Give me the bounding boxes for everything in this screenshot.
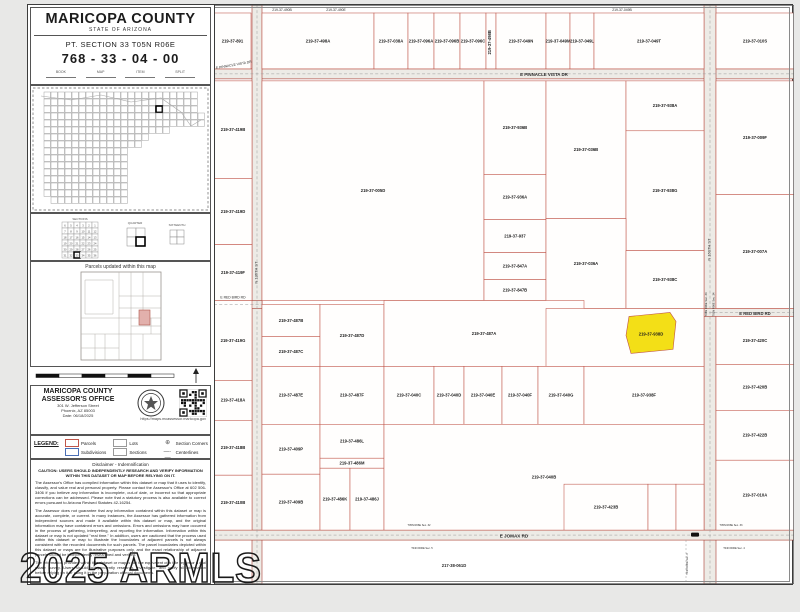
parcel-id-label: 219-37-936B xyxy=(503,125,527,130)
index-map-cell xyxy=(128,134,134,140)
qr-module xyxy=(195,397,197,399)
page: { "watermark": "2025 ARMLS", "sidebar": … xyxy=(0,0,800,612)
index-map-cell xyxy=(177,99,183,105)
index-map-cell xyxy=(121,197,127,203)
qr-finder-dot xyxy=(182,412,185,415)
qr-module xyxy=(192,399,194,401)
map-text-label: N 136TH ST xyxy=(253,261,258,284)
index-map-cell xyxy=(44,92,50,98)
map-text-label: T05N R06E Sec. 34 xyxy=(711,292,715,316)
qr-module xyxy=(195,394,197,396)
index-map-cell xyxy=(170,120,176,126)
index-map-cell xyxy=(86,120,92,126)
index-map-cell xyxy=(65,120,71,126)
parcel-id-label: 219-37-487F xyxy=(340,393,364,398)
index-map-cell xyxy=(86,169,92,175)
index-map-cell xyxy=(65,169,71,175)
index-map-cell xyxy=(156,113,162,119)
index-map-cell xyxy=(156,92,162,98)
index-map-cell xyxy=(142,106,148,112)
map-date: Date: 06/18/2025 xyxy=(63,413,94,418)
legend-item-label: Section Corners xyxy=(176,441,208,446)
sixteenth-grid-cell xyxy=(170,237,177,244)
index-map-cell xyxy=(79,155,85,161)
index-map-cell xyxy=(65,92,71,98)
index-map-cell xyxy=(79,120,85,126)
index-map-cell xyxy=(100,162,106,168)
index-map-cell xyxy=(72,141,78,147)
index-map-cell xyxy=(121,176,127,182)
index-map-cell xyxy=(191,99,197,105)
index-map-cell xyxy=(163,127,169,133)
parcel-id-label: 219-37-487E xyxy=(279,393,303,398)
index-map-cell xyxy=(107,162,113,168)
parcel-id-label: 219-37-040F xyxy=(508,393,532,398)
legend-item-centerline: —·—Centerlines xyxy=(162,448,208,456)
parcel-id-label: 219-37-096B xyxy=(435,38,459,43)
index-map-cell xyxy=(72,176,78,182)
index-map-cell xyxy=(156,127,162,133)
map-text-label: 217-38-061D xyxy=(442,563,466,568)
qr-module xyxy=(195,405,197,407)
parcel-id-label: 219-37-049L xyxy=(570,38,594,43)
index-map-cell xyxy=(107,106,113,112)
index-map-cell xyxy=(44,148,50,154)
index-map-cell xyxy=(44,120,50,126)
armls-watermark: 2025 ARMLS xyxy=(20,544,262,592)
index-map-cell xyxy=(107,127,113,133)
index-map-cell xyxy=(170,106,176,112)
index-map-cell xyxy=(135,134,141,140)
quarter-grid-cell xyxy=(127,237,136,246)
diagram-title: SIXTEENTH xyxy=(169,223,186,227)
qr-module xyxy=(195,391,197,393)
scale-bar xyxy=(30,367,209,385)
index-map-cell xyxy=(100,148,106,154)
parcel-id-label: 219-37-498B xyxy=(487,30,492,54)
sixteenth-grid-cell xyxy=(170,230,177,237)
map-text-label: T05N R06E Sec. 32 xyxy=(408,523,432,527)
index-map-cell xyxy=(149,127,155,133)
parcel[interactable] xyxy=(648,484,676,530)
qr-module xyxy=(200,399,202,401)
index-map-cell xyxy=(79,141,85,147)
diagram-title: SECTIONS xyxy=(72,217,87,221)
index-map-cell xyxy=(184,106,190,112)
index-map-cell xyxy=(44,134,50,140)
index-map-cell xyxy=(65,162,71,168)
index-map-cell xyxy=(93,197,99,203)
index-map-cell xyxy=(65,155,71,161)
index-map-cell xyxy=(44,127,50,133)
index-map-cell xyxy=(121,106,127,112)
index-map-cell xyxy=(114,190,120,196)
qr-module xyxy=(192,402,194,404)
parcel-id-label: 219-37-486L xyxy=(340,439,364,444)
county-title: MARICOPA COUNTY xyxy=(31,11,210,27)
qr-module xyxy=(181,402,183,404)
parcel-id-label: 219-37-419D xyxy=(221,209,245,214)
parcel-id-label: 219-37-010A xyxy=(743,493,767,498)
parcel-id-label: 219-37-938F xyxy=(632,393,656,398)
index-map-cell xyxy=(58,169,64,175)
legend-item-label: Subdivisions xyxy=(81,450,106,455)
index-map-cell xyxy=(191,106,197,112)
index-map-cell xyxy=(114,197,120,203)
qr-module xyxy=(184,399,186,401)
updated-parcels-minimap xyxy=(73,270,169,364)
index-map-cell xyxy=(163,106,169,112)
index-map-cell xyxy=(79,134,85,140)
qr-module xyxy=(195,410,197,412)
index-map-cell xyxy=(177,92,183,98)
index-map-cell xyxy=(44,113,50,119)
index-map-cell xyxy=(51,162,57,168)
index-map-cell xyxy=(149,113,155,119)
index-map-cell xyxy=(79,176,85,182)
index-map-cell xyxy=(72,169,78,175)
office-name: MARICOPA COUNTY ASSESSOR'S OFFICE xyxy=(34,388,122,403)
county-index-map-svg xyxy=(31,86,210,212)
parcel-id-label: 219-37-049T xyxy=(637,38,661,43)
disclaimer-paragraph: The Assessor's Office has compiled infor… xyxy=(35,481,206,506)
index-map-cell xyxy=(79,99,85,105)
parcel-id-label: 219-37-847A xyxy=(503,263,527,268)
index-map-cell xyxy=(65,134,71,140)
parcel-id-label: 219-37-040C xyxy=(397,393,421,398)
index-map-cell xyxy=(44,106,50,112)
parcel-id-label: 219-37-847B xyxy=(503,287,527,292)
index-map-cell xyxy=(142,92,148,98)
parcel-id-label: 219-37-937 xyxy=(504,234,526,239)
index-map-cell xyxy=(149,92,155,98)
index-map-cell xyxy=(121,162,127,168)
office-address: 301 W. Jefferson Street Phoenix, AZ 8500… xyxy=(34,404,122,418)
index-map-cell xyxy=(79,113,85,119)
index-map-cell xyxy=(135,106,141,112)
index-map-cell xyxy=(107,134,113,140)
index-map-cell xyxy=(93,127,99,133)
index-map-cell xyxy=(184,92,190,98)
index-map-cell xyxy=(135,141,141,147)
index-map-cell xyxy=(100,113,106,119)
highlighted-parcel-label: 219-37-938D xyxy=(639,332,663,337)
legend-item-parcel: Parcels xyxy=(65,439,111,447)
index-map-cell xyxy=(114,169,120,175)
index-map-cell xyxy=(58,183,64,189)
quarter-grid-cell xyxy=(127,228,136,237)
assessor-office-block: MARICOPA COUNTY ASSESSOR'S OFFICE 301 W.… xyxy=(30,385,211,435)
index-map-cell xyxy=(51,197,57,203)
index-map-cell xyxy=(121,120,127,126)
qr-module xyxy=(195,408,197,410)
index-map-cell xyxy=(107,176,113,182)
index-map-cell xyxy=(79,148,85,154)
parcel-id-label: 219-37-410B xyxy=(221,500,245,505)
index-map-cell xyxy=(72,106,78,112)
parcel-book-number: 768 - 33 - 04 - 00 xyxy=(31,51,210,66)
state-subtitle: STATE OF ARIZONA xyxy=(34,27,207,36)
parcel-id-label: 219-37-423B xyxy=(594,505,618,510)
index-map-cell xyxy=(58,99,64,105)
scale-bar-segment xyxy=(36,374,59,378)
index-map-cell xyxy=(107,99,113,105)
parcel-id-label: 219-37-486M xyxy=(340,461,365,466)
index-map-cell xyxy=(51,183,57,189)
index-map-cell xyxy=(121,148,127,154)
qr-module xyxy=(197,408,199,410)
index-map-cell xyxy=(107,183,113,189)
index-map-cell xyxy=(93,155,99,161)
header-col: BOOK xyxy=(46,70,76,78)
index-map-cell xyxy=(128,141,134,147)
index-map-cell xyxy=(163,92,169,98)
qr-module xyxy=(203,399,205,401)
index-map-cell xyxy=(51,155,57,161)
index-map-current-cell xyxy=(156,106,162,112)
index-map-cell xyxy=(51,120,57,126)
index-map-cell xyxy=(184,99,190,105)
road-marker xyxy=(691,533,699,537)
index-map-cell xyxy=(121,141,127,147)
qr-module xyxy=(184,405,186,407)
parcel-id-label: 219-37-486J xyxy=(355,497,379,502)
qr-module xyxy=(200,405,202,407)
parcels-updated-box: Parcels updated within this map xyxy=(30,261,211,367)
index-map-cell xyxy=(100,176,106,182)
qr-module xyxy=(181,399,183,401)
map-text-label: T04N R06E Sec. 5 xyxy=(411,546,433,550)
index-map-cell xyxy=(121,190,127,196)
map-text-label: T05N R06E Sec. 33 xyxy=(704,292,708,316)
qr-module xyxy=(197,399,199,401)
parcel-id-label: 219-37-422B xyxy=(743,433,767,438)
index-map-cell xyxy=(79,127,85,133)
qr-module xyxy=(192,391,194,393)
index-map-cell xyxy=(114,141,120,147)
index-map-cell xyxy=(58,113,64,119)
qr-module xyxy=(189,394,191,396)
index-map-cell xyxy=(93,106,99,112)
index-map-cell xyxy=(142,127,148,133)
assessor-seal-icon xyxy=(136,388,166,418)
scale-bar-segment xyxy=(105,374,128,378)
index-map-cell xyxy=(79,106,85,112)
index-map-cell xyxy=(72,134,78,140)
legend-item-subdivision: Subdivisions xyxy=(65,448,111,456)
parcel[interactable] xyxy=(546,308,704,366)
index-map-cell xyxy=(51,148,57,154)
index-map-cell xyxy=(65,183,71,189)
index-map-cell xyxy=(135,99,141,105)
index-map-cell xyxy=(170,99,176,105)
map-text-label: 219-37-490B xyxy=(272,8,292,12)
parcel-id-label: 219-37-096C xyxy=(461,38,485,43)
index-map-cell xyxy=(93,113,99,119)
index-map-cell xyxy=(58,141,64,147)
index-map-cell xyxy=(58,120,64,126)
index-map-cell xyxy=(93,120,99,126)
qr-module xyxy=(184,402,186,404)
index-map-cell xyxy=(44,162,50,168)
disclaimer-caution: CAUTION: USERS SHOULD INDEPENDENTLY RESE… xyxy=(35,468,206,478)
map-text-label: 219-37-490E xyxy=(326,8,346,12)
subdivision-swatch-icon xyxy=(65,448,79,456)
index-map-cell xyxy=(142,134,148,140)
scale-bar-box xyxy=(30,367,211,385)
parcel-id-label: 219-37-487B xyxy=(279,318,303,323)
parcel-id-label: 219-37-009F xyxy=(743,135,767,140)
parcel-id-label: 219-37-418A xyxy=(221,398,245,403)
index-map-cell xyxy=(93,183,99,189)
index-map-cell xyxy=(86,148,92,154)
index-map-cell xyxy=(107,120,113,126)
index-map-cell xyxy=(51,127,57,133)
parcel-id-label: 219-37-498A xyxy=(306,38,330,43)
index-map-cell xyxy=(86,141,92,147)
index-map-cell xyxy=(100,190,106,196)
parcel-id-label: 219-37-891 xyxy=(222,38,244,43)
parcel-id-label: 219-37-049M xyxy=(546,38,571,43)
index-map-cell xyxy=(156,120,162,126)
map-text-label: T04N R06E Sec. 4 xyxy=(723,546,745,550)
map-text-label: T05N R06E Sec. 33 xyxy=(720,523,744,527)
parcel-id-label: 219-37-007A xyxy=(743,249,767,254)
index-map-cell xyxy=(86,106,92,112)
qr-module xyxy=(192,410,194,412)
index-map-cell xyxy=(100,99,106,105)
index-map-cell xyxy=(58,148,64,154)
parcel-id-label: 219-37-419G xyxy=(221,338,246,343)
map-text-label: E JOMAX RD xyxy=(500,534,529,539)
parcel-swatch-icon xyxy=(65,439,79,447)
qr-module xyxy=(195,402,197,404)
index-map-cell xyxy=(121,155,127,161)
parcel-id-label: 219-37-420B xyxy=(743,385,767,390)
title-block: MARICOPA COUNTY STATE OF ARIZONA PT. SEC… xyxy=(30,7,211,85)
map-text-label: N 160TH ST xyxy=(706,238,711,261)
index-map-cell xyxy=(121,183,127,189)
index-map-cell xyxy=(51,190,57,196)
index-map-cell xyxy=(72,155,78,161)
qr-code[interactable] xyxy=(179,389,207,417)
header-columns: BOOKMAPITEMSPLIT xyxy=(41,70,200,78)
parcel-id-label: 219-37-040B xyxy=(532,475,556,480)
scale-bar-segment xyxy=(82,374,105,378)
index-map-cell xyxy=(121,113,127,119)
index-map-cell xyxy=(65,190,71,196)
index-map-cell xyxy=(51,134,57,140)
index-map-cell xyxy=(79,183,85,189)
index-map-cell xyxy=(100,155,106,161)
legend: LEGEND: ParcelsLots⊕Section CornersSubdi… xyxy=(30,435,211,459)
qr-module xyxy=(195,399,197,401)
header-col: ITEM xyxy=(125,70,155,78)
index-map-cell xyxy=(135,113,141,119)
index-map-cell xyxy=(114,162,120,168)
index-map-cell xyxy=(107,155,113,161)
index-map-cell xyxy=(58,197,64,203)
index-map-cell xyxy=(44,176,50,182)
index-map-cell xyxy=(100,120,106,126)
header-col: SPLIT xyxy=(165,70,195,78)
quarter-grid-cell xyxy=(136,228,145,237)
map-text-label: T04N R06E Sec. 3 xyxy=(685,553,689,575)
parcel-id-label: 219-37-418B xyxy=(221,445,245,450)
road xyxy=(252,5,262,584)
legend-item-sections: Sections xyxy=(113,448,159,456)
index-map-cell xyxy=(86,155,92,161)
parcel-id-label: 219-37-419F xyxy=(221,270,245,275)
quarter-grid-cell xyxy=(136,237,145,246)
index-map-cell xyxy=(58,134,64,140)
centerline-swatch-icon: —·— xyxy=(162,449,174,455)
index-map-cell xyxy=(163,113,169,119)
parcel[interactable] xyxy=(676,484,704,530)
parcel-id-label: 219-37-040E xyxy=(471,393,495,398)
sixteenth-grid-cell xyxy=(177,230,184,237)
disclaimer-title: Disclaimer - Indemnification xyxy=(35,462,206,467)
index-map-cell xyxy=(86,134,92,140)
parcel-id-label: 219-37-010S xyxy=(743,38,767,43)
index-map-cell xyxy=(79,92,85,98)
index-map-cell xyxy=(65,106,71,112)
index-map-cell xyxy=(51,141,57,147)
index-map-cell xyxy=(72,148,78,154)
lots-swatch-icon xyxy=(113,439,127,447)
index-map-cell xyxy=(149,106,155,112)
index-map-cell xyxy=(65,148,71,154)
qr-module xyxy=(195,413,197,415)
index-map-cell xyxy=(93,99,99,105)
index-map-cell xyxy=(100,106,106,112)
parcel-id-label: 219-37-938C xyxy=(653,277,677,282)
legend-item-corner: ⊕Section Corners xyxy=(162,439,208,447)
index-map-cell xyxy=(93,134,99,140)
index-map-cell xyxy=(191,92,197,98)
map-sheet: MARICOPA COUNTY STATE OF ARIZONA PT. SEC… xyxy=(27,4,793,585)
index-map-cell xyxy=(114,113,120,119)
index-map-cell xyxy=(51,176,57,182)
index-map-cell xyxy=(58,176,64,182)
legend-title: LEGEND: xyxy=(34,441,59,447)
map-text-label: E RED BIRD RD xyxy=(739,311,770,316)
sidebar: MARICOPA COUNTY STATE OF ARIZONA PT. SEC… xyxy=(28,5,215,584)
north-arrow-head xyxy=(193,368,199,374)
index-map-cell xyxy=(79,169,85,175)
scale-bar-segment xyxy=(128,374,151,378)
index-map-cell xyxy=(121,169,127,175)
minimap-updated-parcel xyxy=(139,310,150,325)
index-map-cell xyxy=(128,127,134,133)
index-map-cell xyxy=(107,148,113,154)
index-map-cell xyxy=(128,92,134,98)
index-map-cell xyxy=(100,134,106,140)
parcel-id-label: 219-37-096A xyxy=(409,38,433,43)
index-map-cell xyxy=(135,92,141,98)
index-map-cell xyxy=(86,99,92,105)
legend-item-label: Centerlines xyxy=(176,450,199,455)
index-map-cell xyxy=(93,169,99,175)
qr-module xyxy=(203,413,205,415)
index-map-cell xyxy=(93,162,99,168)
parcel-id-label: 219-37-936A xyxy=(503,195,527,200)
index-map-cell xyxy=(142,120,148,126)
index-map-cell xyxy=(100,169,106,175)
index-map-cell xyxy=(93,190,99,196)
index-map-cell xyxy=(114,120,120,126)
index-map-cell xyxy=(72,183,78,189)
